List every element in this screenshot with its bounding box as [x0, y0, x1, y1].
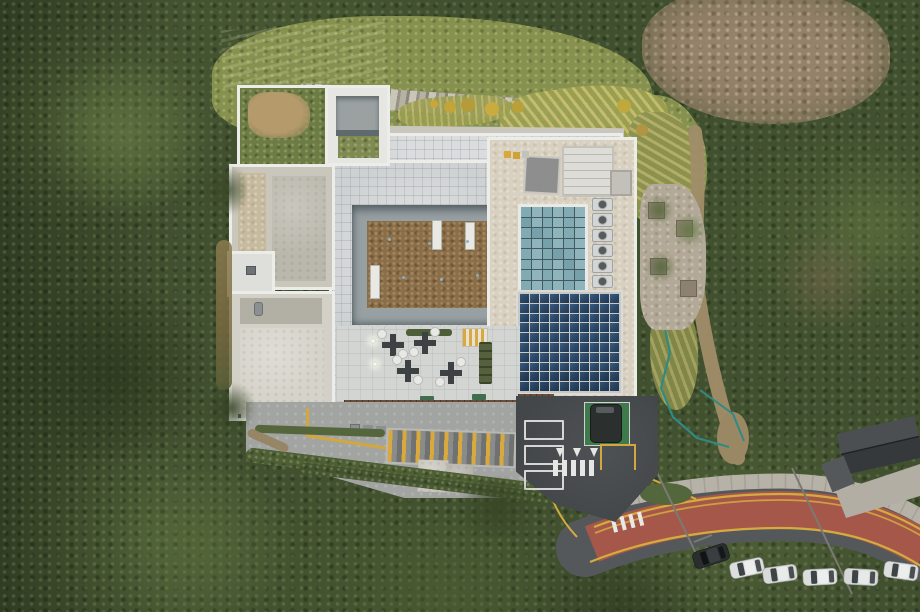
solar-panel-cell	[560, 353, 569, 362]
terrace-tree-canopy	[646, 252, 676, 282]
dirt-trail-widening	[717, 412, 749, 464]
overhanging-canopy	[208, 380, 254, 436]
crosswalk-stripe	[571, 460, 576, 476]
left-wing-concrete-panel	[272, 176, 326, 281]
solar-panel-cell	[520, 363, 529, 372]
round-table	[393, 356, 401, 364]
solar-panel-cell	[590, 353, 599, 362]
solar-panel-cell	[550, 353, 559, 362]
solar-panel-cell	[590, 372, 599, 381]
skylight-pane	[575, 239, 585, 249]
solar-panel-cell	[560, 294, 569, 303]
solar-panel-cell	[520, 382, 529, 391]
yellow-rooftop-equipment	[504, 151, 511, 158]
skylight-pane	[532, 228, 542, 238]
parked-car-white	[729, 557, 766, 580]
skylight-pane	[564, 239, 574, 249]
solar-panel-cell	[570, 353, 579, 362]
solar-panel-cell	[550, 382, 559, 391]
solar-panel-cell	[600, 382, 609, 391]
chair-cross	[382, 342, 404, 348]
rooftop-cylinders	[254, 302, 263, 316]
skylight-pane	[564, 207, 574, 217]
aerial-photograph	[0, 0, 920, 612]
yield-triangle	[590, 448, 598, 457]
solar-panel-cell	[590, 323, 599, 332]
skylight-pane	[543, 239, 553, 249]
courtyard-planter	[466, 223, 474, 249]
parked-car-white	[844, 568, 879, 586]
solar-panel-cell	[590, 294, 599, 303]
solar-panel-cell	[540, 294, 549, 303]
skylight-pane	[543, 270, 553, 280]
skylight-pane	[521, 207, 531, 217]
hvac-fan-unit	[592, 244, 613, 257]
round-table	[414, 376, 422, 384]
skylight-pane	[553, 207, 563, 217]
crosswalk-stripe	[562, 460, 567, 476]
solar-panel-cell	[610, 323, 619, 332]
solar-panel-cell	[590, 343, 599, 352]
solar-panel-cell	[530, 304, 539, 313]
skylight-pane	[575, 218, 585, 228]
skylight-pane	[575, 270, 585, 280]
chair-cross	[414, 340, 436, 346]
annex-court-paving	[336, 96, 379, 132]
solar-panel-cell	[600, 363, 609, 372]
round-table	[410, 348, 418, 356]
solar-panel-cell	[530, 372, 539, 381]
plaza-planter-column	[479, 342, 492, 384]
courtyard-soil-garden	[367, 221, 493, 308]
solar-panel-cell	[610, 382, 619, 391]
solar-panel-cell	[600, 304, 609, 313]
overhanging-canopy	[452, 478, 542, 538]
solar-panel-cell	[540, 353, 549, 362]
skylight-pane	[521, 249, 531, 259]
yellow-bay-marking	[600, 444, 636, 470]
solar-panel-cell	[590, 382, 599, 391]
terrace-planter	[680, 280, 697, 297]
skylight-pane	[521, 270, 531, 280]
solar-panel-cell	[520, 372, 529, 381]
skylight-pane	[575, 281, 585, 291]
skylight-pane	[543, 207, 553, 217]
skylight-pane	[575, 260, 585, 270]
annex-court-garden	[338, 136, 379, 158]
solar-panel-cell	[600, 353, 609, 362]
solar-panel-cell	[560, 382, 569, 391]
solar-panel-cell	[530, 323, 539, 332]
skylight-pane	[553, 260, 563, 270]
solar-panel-cell	[560, 323, 569, 332]
solar-panel-cell	[550, 294, 559, 303]
solar-panel-cell	[530, 294, 539, 303]
skylight-pane	[532, 207, 542, 217]
skylight-pane	[553, 249, 563, 259]
solar-panel-cell	[570, 363, 579, 372]
round-table	[436, 378, 444, 386]
skylight-pane	[575, 207, 585, 217]
yield-triangle	[556, 448, 564, 457]
solar-panel-cell	[590, 333, 599, 342]
solar-panel-cell	[550, 323, 559, 332]
skylight-pane	[521, 228, 531, 238]
solar-panel-cell	[580, 323, 589, 332]
skylight-pane	[553, 218, 563, 228]
skylight-pane	[553, 239, 563, 249]
parked-car-white	[803, 568, 838, 586]
solar-panel-cell	[570, 372, 579, 381]
yield-triangle	[573, 448, 581, 457]
solar-panel-cell	[600, 294, 609, 303]
terrace-tree-canopy	[672, 214, 706, 246]
crosswalk-stripe	[589, 460, 594, 476]
solar-panel-cell	[520, 323, 529, 332]
solar-panel-cell	[580, 294, 589, 303]
solar-panel-cell	[540, 382, 549, 391]
solar-panel-cell	[540, 372, 549, 381]
plaza-table-set	[382, 334, 404, 356]
skylight-pane	[575, 228, 585, 238]
solar-panel-cell	[550, 333, 559, 342]
parked-car-white	[762, 564, 798, 585]
courtyard-planter	[371, 266, 379, 298]
hvac-fan-unit	[592, 259, 613, 272]
solar-panel-cell	[600, 323, 609, 332]
striped-stair-feature	[385, 428, 516, 469]
roof-enclosure	[610, 170, 632, 196]
solar-panel-cell	[580, 314, 589, 323]
solar-panel-cell	[600, 343, 609, 352]
solar-panel-cell	[540, 323, 549, 332]
solar-panel-cell	[560, 333, 569, 342]
round-table	[457, 358, 465, 366]
skylight-pane	[564, 218, 574, 228]
solar-panel-cell	[560, 363, 569, 372]
hvac-fan-unit	[592, 213, 613, 226]
solar-panel-cell	[520, 314, 529, 323]
solar-panel-cell	[520, 343, 529, 352]
solar-panel-cell	[520, 294, 529, 303]
skylight-pane	[575, 249, 585, 259]
dry-brush-strip	[216, 240, 232, 390]
solar-panel-cell	[560, 372, 569, 381]
skylight-pane	[521, 260, 531, 270]
solar-panel-cell	[600, 314, 609, 323]
solar-panel-cell	[540, 333, 549, 342]
solar-panel-cell	[600, 333, 609, 342]
overhanging-canopy	[206, 160, 246, 220]
grass-wedge	[640, 483, 692, 505]
hvac-unit-column	[592, 198, 613, 288]
solar-panel-cell	[570, 304, 579, 313]
solar-panel-cell	[580, 363, 589, 372]
solar-panel-cell	[610, 304, 619, 313]
skylight-pane	[543, 218, 553, 228]
plaza-light-post	[372, 361, 378, 367]
skylight-pane	[564, 228, 574, 238]
solar-panel-array	[516, 290, 623, 395]
courtyard-planter	[433, 221, 441, 249]
roof-hatch-dark	[525, 157, 559, 193]
skylight-pane	[543, 281, 553, 291]
solar-panel-cell	[540, 304, 549, 313]
skylight-pane	[564, 281, 574, 291]
skylight-pane	[521, 218, 531, 228]
terrace-tree-canopy	[644, 196, 674, 224]
solar-panel-cell	[610, 333, 619, 342]
skylight-pane	[532, 218, 542, 228]
solar-panel-cell	[560, 343, 569, 352]
solar-panel-cell	[580, 343, 589, 352]
solar-panel-cell	[520, 333, 529, 342]
skylight-pane	[543, 260, 553, 270]
skylight-pane	[564, 260, 574, 270]
skylight-pane	[564, 270, 574, 280]
solar-panel-cell	[600, 372, 609, 381]
solar-panel-cell	[590, 363, 599, 372]
solar-panel-cell	[530, 353, 539, 362]
skylight-pane	[553, 270, 563, 280]
solar-panel-cell	[560, 314, 569, 323]
solar-panel-cell	[580, 333, 589, 342]
solar-panel-cell	[560, 304, 569, 313]
solar-panel-cell	[610, 363, 619, 372]
crosswalk-stripe	[553, 460, 558, 476]
skylight-pane	[553, 281, 563, 291]
skylight-pane	[543, 249, 553, 259]
round-table	[431, 328, 439, 336]
solar-panel-cell	[570, 343, 579, 352]
van-windshield	[596, 407, 614, 413]
solar-panel-cell	[550, 363, 559, 372]
hvac-fan-unit	[592, 275, 613, 288]
courtyard-uplights	[388, 238, 391, 241]
round-table	[378, 330, 386, 338]
solar-panel-cell	[580, 382, 589, 391]
solar-panel-cell	[610, 372, 619, 381]
driveway-crosswalk	[553, 460, 594, 476]
solar-panel-cell	[550, 372, 559, 381]
green-roof-dry-patch	[248, 92, 310, 138]
chair-cross	[397, 368, 419, 374]
crosswalk-stripe	[580, 460, 585, 476]
solar-panel-cell	[530, 333, 539, 342]
skylight-pane	[564, 249, 574, 259]
stair-roof-ribbed-panel	[562, 146, 614, 197]
solar-panel-cell	[570, 314, 579, 323]
solar-panel-cell	[570, 294, 579, 303]
hvac-fan-unit	[592, 229, 613, 242]
skylight-pane	[532, 281, 542, 291]
solar-panel-cell	[530, 314, 539, 323]
plaza-light-post	[370, 338, 376, 344]
plaza-table-set	[397, 360, 419, 382]
solar-panel-cell	[570, 323, 579, 332]
skylight-pane	[532, 239, 542, 249]
solar-panel-cell	[610, 294, 619, 303]
solar-panel-cell	[540, 314, 549, 323]
solar-panel-cell	[610, 314, 619, 323]
skylight-pane	[553, 228, 563, 238]
solar-panel-cell	[580, 372, 589, 381]
solar-panel-cell	[540, 343, 549, 352]
solar-panel-cell	[530, 382, 539, 391]
plaza-table-set	[440, 362, 462, 384]
skylight-pane	[521, 239, 531, 249]
skylight-pane	[521, 281, 531, 291]
parking-stall	[524, 420, 564, 440]
glass-skylight	[518, 204, 588, 293]
annex-equipment	[246, 266, 256, 275]
solar-panel-cell	[550, 343, 559, 352]
plaza-table-set	[414, 332, 436, 354]
solar-panel-cell	[530, 343, 539, 352]
roadside-pavilion	[836, 416, 920, 475]
solar-panel-cell	[580, 353, 589, 362]
solar-panel-cell	[580, 304, 589, 313]
solar-panel-cell	[610, 353, 619, 362]
solar-panel-cell	[590, 314, 599, 323]
solar-panel-cell	[610, 343, 619, 352]
chair-cross	[440, 370, 462, 376]
solar-panel-cell	[570, 382, 579, 391]
skylight-pane	[543, 228, 553, 238]
solar-panel-cell	[530, 363, 539, 372]
yield-triangle-row	[556, 448, 598, 457]
solar-panel-cell	[520, 353, 529, 362]
skylight-pane	[532, 260, 542, 270]
solar-panel-cell	[520, 304, 529, 313]
solar-panel-cell	[540, 363, 549, 372]
solar-panel-cell	[550, 314, 559, 323]
solar-panel-cell	[550, 304, 559, 313]
skylight-pane	[532, 270, 542, 280]
left-wing-mid-panel	[240, 298, 322, 324]
solar-panel-cell	[590, 304, 599, 313]
hvac-fan-unit	[592, 198, 613, 211]
solar-panel-cell	[570, 333, 579, 342]
skylight-pane	[532, 249, 542, 259]
